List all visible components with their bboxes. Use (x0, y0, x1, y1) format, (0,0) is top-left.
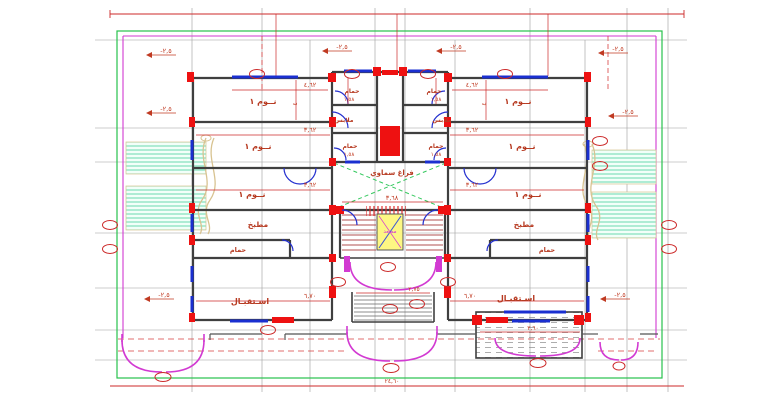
dim-bed-height-l: ٤ (292, 102, 299, 105)
dim-bath-r2: ١,٥٨ (431, 152, 442, 158)
dim-entry: ٢,٧٥ (408, 286, 420, 293)
room-label-bedroom-r1: نــوم ١ (504, 97, 531, 106)
floor-plan-canvas: مصعد (0, 0, 780, 400)
room-label-kitchen-r: مطبخ (514, 220, 535, 229)
room-label-bath-r: حمام (539, 246, 556, 254)
room-label-bedroom-l1: نــوم ١ (249, 97, 276, 106)
room-label-bath-c-l2: حمام (343, 143, 358, 150)
level-marker: -٢,٥ (612, 45, 624, 53)
dim-lightwell: ٣,٦٨ (386, 194, 399, 202)
level-marker: -٢,٥ (622, 108, 634, 116)
dim-bath-l2: ١,٥٨ (344, 152, 355, 158)
elevator-core-column (380, 126, 400, 156)
elevator-label: مصعد (383, 229, 396, 235)
level-marker: -٢,٥ (158, 291, 170, 299)
level-marker: -٢,٥ (336, 43, 348, 51)
room-label-lightwell: فراغ سماوي (370, 169, 414, 177)
room-label-bath-c-r1: حمام (427, 88, 442, 95)
dim-bed2-l: ٣,٦٢ (304, 126, 317, 134)
elevator: مصعد (377, 214, 403, 250)
room-label-closet-r: ملابس (432, 117, 451, 124)
center-bottom-arch (347, 332, 390, 361)
dim-terrace: ٣,٦٠ (527, 325, 539, 332)
room-label-bedroom-r2: نــوم ١ (508, 142, 535, 151)
room-label-closet-l: ملابس (334, 117, 353, 124)
dim-bath-l1: ١,٥٨ (344, 97, 355, 103)
level-marker: -٢,٥ (160, 105, 172, 113)
dim-bed3-l: ٣,٦٢ (304, 181, 317, 189)
room-label-bath-l: حمام (230, 246, 247, 254)
left-arch (122, 340, 162, 372)
level-marker: -٢,٥ (614, 291, 626, 299)
dim-bed1-l: ٤,٦٢ (304, 81, 317, 89)
floor-plan-drawing: مصعد (0, 0, 780, 400)
level-marker: -٢,٥ (450, 43, 462, 51)
room-label-bedroom-r3: نــوم ١ (514, 190, 541, 199)
dim-bed1-r: ٤,٦٢ (466, 81, 479, 89)
room-label-reception-l: اسـتقبـال (231, 297, 270, 306)
garden-right (583, 141, 656, 240)
dim-bath-r1: ١,٥٨ (431, 97, 442, 103)
dim-bed3-r: ٣,٦٢ (466, 181, 479, 189)
room-label-bath-c-l1: حمام (345, 88, 360, 95)
room-label-bath-c-r2: حمام (429, 143, 444, 150)
level-marker: -٢,٥ (160, 47, 172, 55)
dim-bed-height-r: ٤ (481, 102, 488, 105)
room-label-bedroom-l2: نــوم ١ (244, 142, 271, 151)
room-label-reception-r: اسـتقبـال (497, 294, 536, 303)
entrance-arch (350, 262, 392, 290)
dim-total-width: ٢٤,٦٠ (385, 378, 400, 385)
room-label-bedroom-l3: نــوم ١ (238, 190, 265, 199)
dim-reception-l: ٦,٧٠ (304, 292, 317, 300)
room-label-kitchen-l: مطبخ (248, 220, 269, 229)
dim-bed2-r: ٣,٦٢ (466, 126, 479, 134)
dim-reception-r: ٦,٧٠ (464, 292, 477, 300)
garden-left (126, 135, 215, 234)
